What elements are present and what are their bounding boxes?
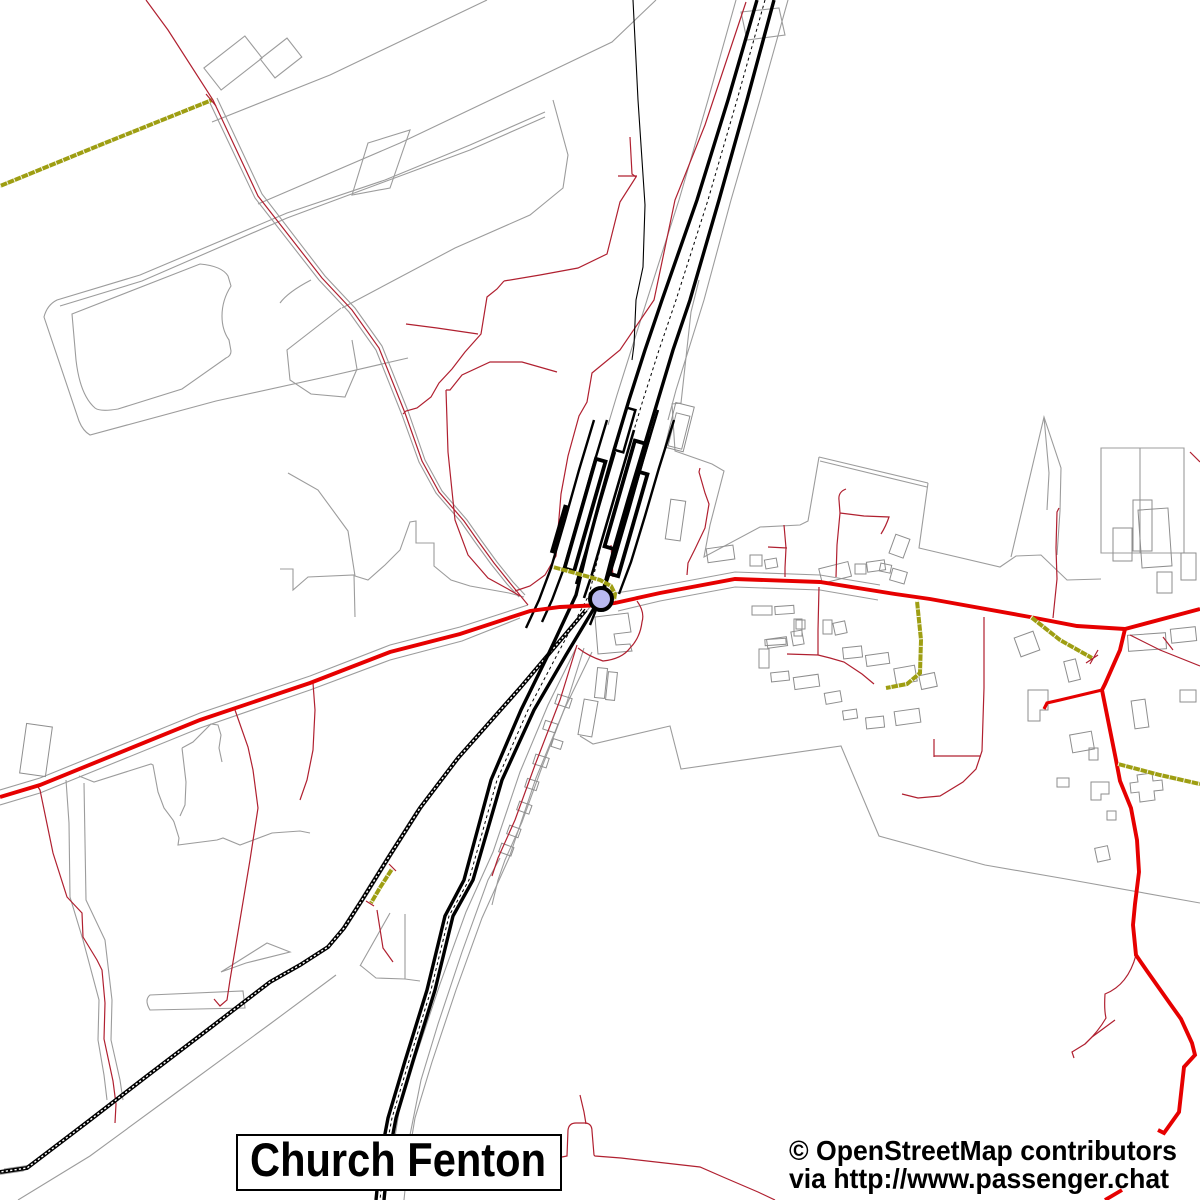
svg-text:via http://www.passenger.chat: via http://www.passenger.chat (789, 1163, 1169, 1194)
svg-text:Church Fenton: Church Fenton (250, 1133, 546, 1186)
svg-text:© OpenStreetMap contributors: © OpenStreetMap contributors (789, 1135, 1177, 1166)
